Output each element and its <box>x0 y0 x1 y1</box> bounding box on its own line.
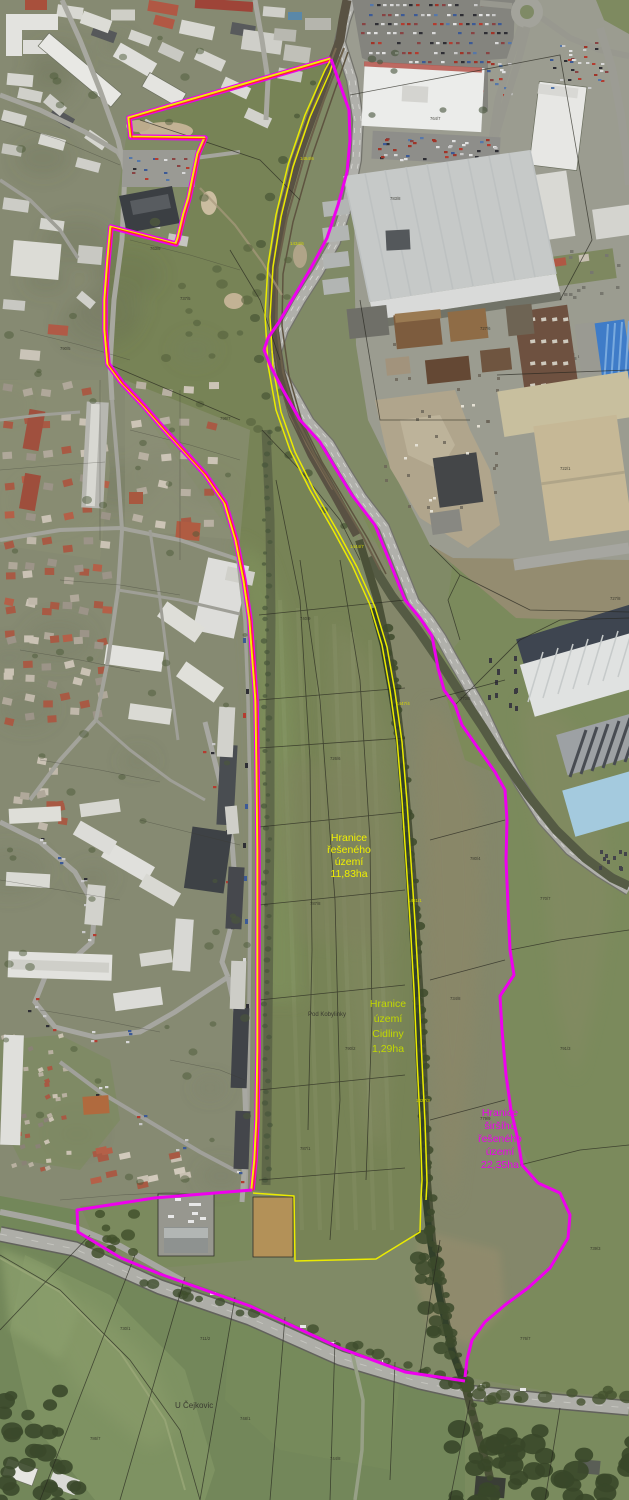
svg-text:727/6: 727/6 <box>480 326 491 331</box>
svg-text:790/2: 790/2 <box>345 1046 356 1051</box>
svg-text:786/7: 786/7 <box>90 1436 101 1441</box>
svg-text:790/5: 790/5 <box>60 346 71 351</box>
svg-text:727/8: 727/8 <box>610 596 621 601</box>
svg-text:770/5: 770/5 <box>460 696 471 701</box>
svg-text:787/1: 787/1 <box>300 1146 311 1151</box>
svg-text:území: území <box>335 856 364 868</box>
svg-text:1434/6: 1434/6 <box>290 241 304 246</box>
svg-text:744/8: 744/8 <box>330 1456 341 1461</box>
svg-text:780/4: 780/4 <box>470 856 481 861</box>
svg-text:řešeného: řešeného <box>327 844 371 856</box>
svg-text:1431/1: 1431/1 <box>408 898 422 903</box>
svg-text:1,29ha: 1,29ha <box>372 1043 404 1055</box>
svg-text:726/6: 726/6 <box>330 756 341 761</box>
svg-text:1447/4: 1447/4 <box>396 701 410 706</box>
svg-text:779/9: 779/9 <box>480 1116 491 1121</box>
svg-text:území: území <box>374 1013 403 1025</box>
svg-text:734/8: 734/8 <box>450 996 461 1001</box>
svg-text:730/1: 730/1 <box>120 1326 131 1331</box>
svg-text:722/1: 722/1 <box>560 466 571 471</box>
svg-text:území: území <box>486 1146 515 1158</box>
svg-text:787/8: 787/8 <box>310 901 321 906</box>
svg-text:796/7: 796/7 <box>220 416 231 421</box>
svg-text:1427/3: 1427/3 <box>416 1098 430 1103</box>
svg-text:776/7: 776/7 <box>520 1336 531 1341</box>
svg-text:1454/6: 1454/6 <box>300 156 314 161</box>
svg-text:748/1: 748/1 <box>240 1416 251 1421</box>
svg-text:737/5: 737/5 <box>180 296 191 301</box>
svg-text:11,83ha: 11,83ha <box>330 868 367 880</box>
svg-text:Cidliny: Cidliny <box>372 1028 404 1040</box>
svg-text:22,35ha: 22,35ha <box>481 1159 519 1171</box>
svg-text:711/2: 711/2 <box>200 1336 211 1341</box>
svg-text:širšího: širšího <box>485 1120 516 1132</box>
svg-text:791/3: 791/3 <box>560 1046 571 1051</box>
svg-text:U Čejkovic: U Čejkovic <box>175 1401 213 1410</box>
svg-text:739/3: 739/3 <box>590 1246 601 1251</box>
svg-text:Pod Kobylinky: Pod Kobylinky <box>308 1012 346 1018</box>
svg-text:Hranice: Hranice <box>331 832 367 844</box>
svg-text:Hranice: Hranice <box>370 998 406 1010</box>
svg-text:783/8: 783/8 <box>390 196 401 201</box>
svg-text:763/9: 763/9 <box>150 246 161 251</box>
svg-text:740/9: 740/9 <box>300 616 311 621</box>
svg-text:řešeného: řešeného <box>478 1133 522 1145</box>
svg-text:764/7: 764/7 <box>430 116 441 121</box>
svg-text:1444/7: 1444/7 <box>350 544 364 549</box>
svg-text:770/7: 770/7 <box>540 896 551 901</box>
